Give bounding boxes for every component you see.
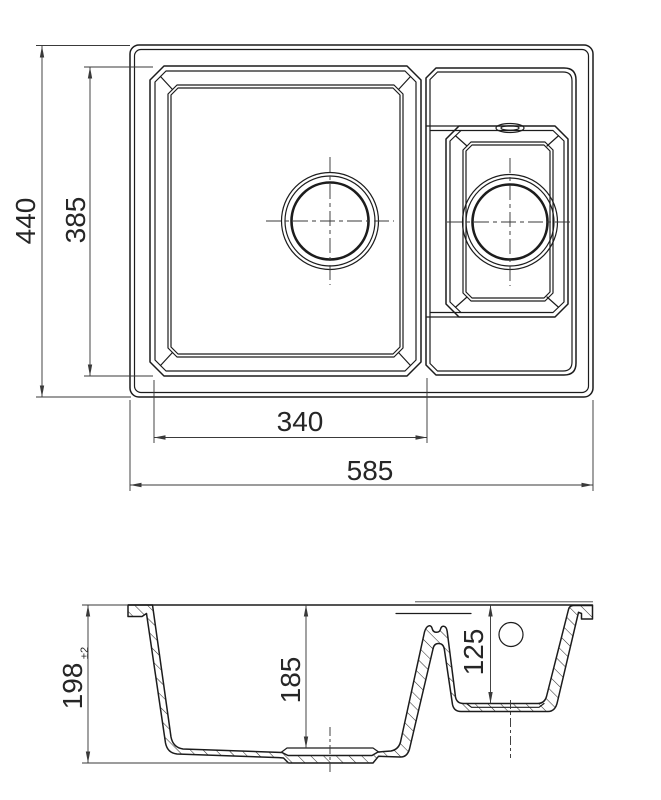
dim-label-185: 185 bbox=[275, 657, 306, 704]
small-bowl-inner-edge bbox=[463, 142, 553, 301]
small-bowl-corner-chamfers bbox=[456, 136, 559, 308]
dimension-main-bowl-depth: 185 bbox=[275, 605, 308, 748]
section-view: 198 ±2 185 125 bbox=[57, 602, 593, 774]
dim-label-198-tolerance: ±2 bbox=[79, 647, 91, 659]
dim-label-340: 340 bbox=[277, 406, 324, 437]
small-bowl bbox=[446, 124, 573, 318]
dim-label-198: 198 bbox=[57, 663, 88, 710]
module-shelf-lines bbox=[426, 126, 461, 317]
dim-label-440: 440 bbox=[10, 198, 41, 245]
dim-label-125: 125 bbox=[458, 629, 489, 676]
tap-hole-icon bbox=[496, 124, 524, 133]
dim-label-585: 585 bbox=[347, 455, 394, 486]
top-view: 440 385 340 585 bbox=[10, 45, 593, 491]
dimension-overall-width: 585 bbox=[130, 400, 593, 491]
main-bowl bbox=[150, 66, 421, 376]
half-bowl-module bbox=[426, 68, 576, 375]
section-shell bbox=[128, 605, 593, 763]
dimension-bowls-depth: 385 bbox=[60, 67, 153, 376]
dimension-main-bowl-width: 340 bbox=[154, 378, 427, 443]
module-inner-edge bbox=[430, 72, 572, 371]
drawing-page: 440 385 340 585 bbox=[0, 0, 661, 800]
tap-hole-section-icon bbox=[499, 623, 523, 647]
small-bowl-inner-edge-2 bbox=[466, 145, 550, 298]
dim-label-385: 385 bbox=[60, 197, 91, 244]
main-drain-icon bbox=[266, 157, 394, 285]
sink-technical-drawing: 440 385 340 585 bbox=[0, 0, 661, 800]
dimension-small-bowl-depth: 125 bbox=[458, 605, 493, 704]
dimension-overall-height: 198 ±2 bbox=[57, 605, 289, 763]
